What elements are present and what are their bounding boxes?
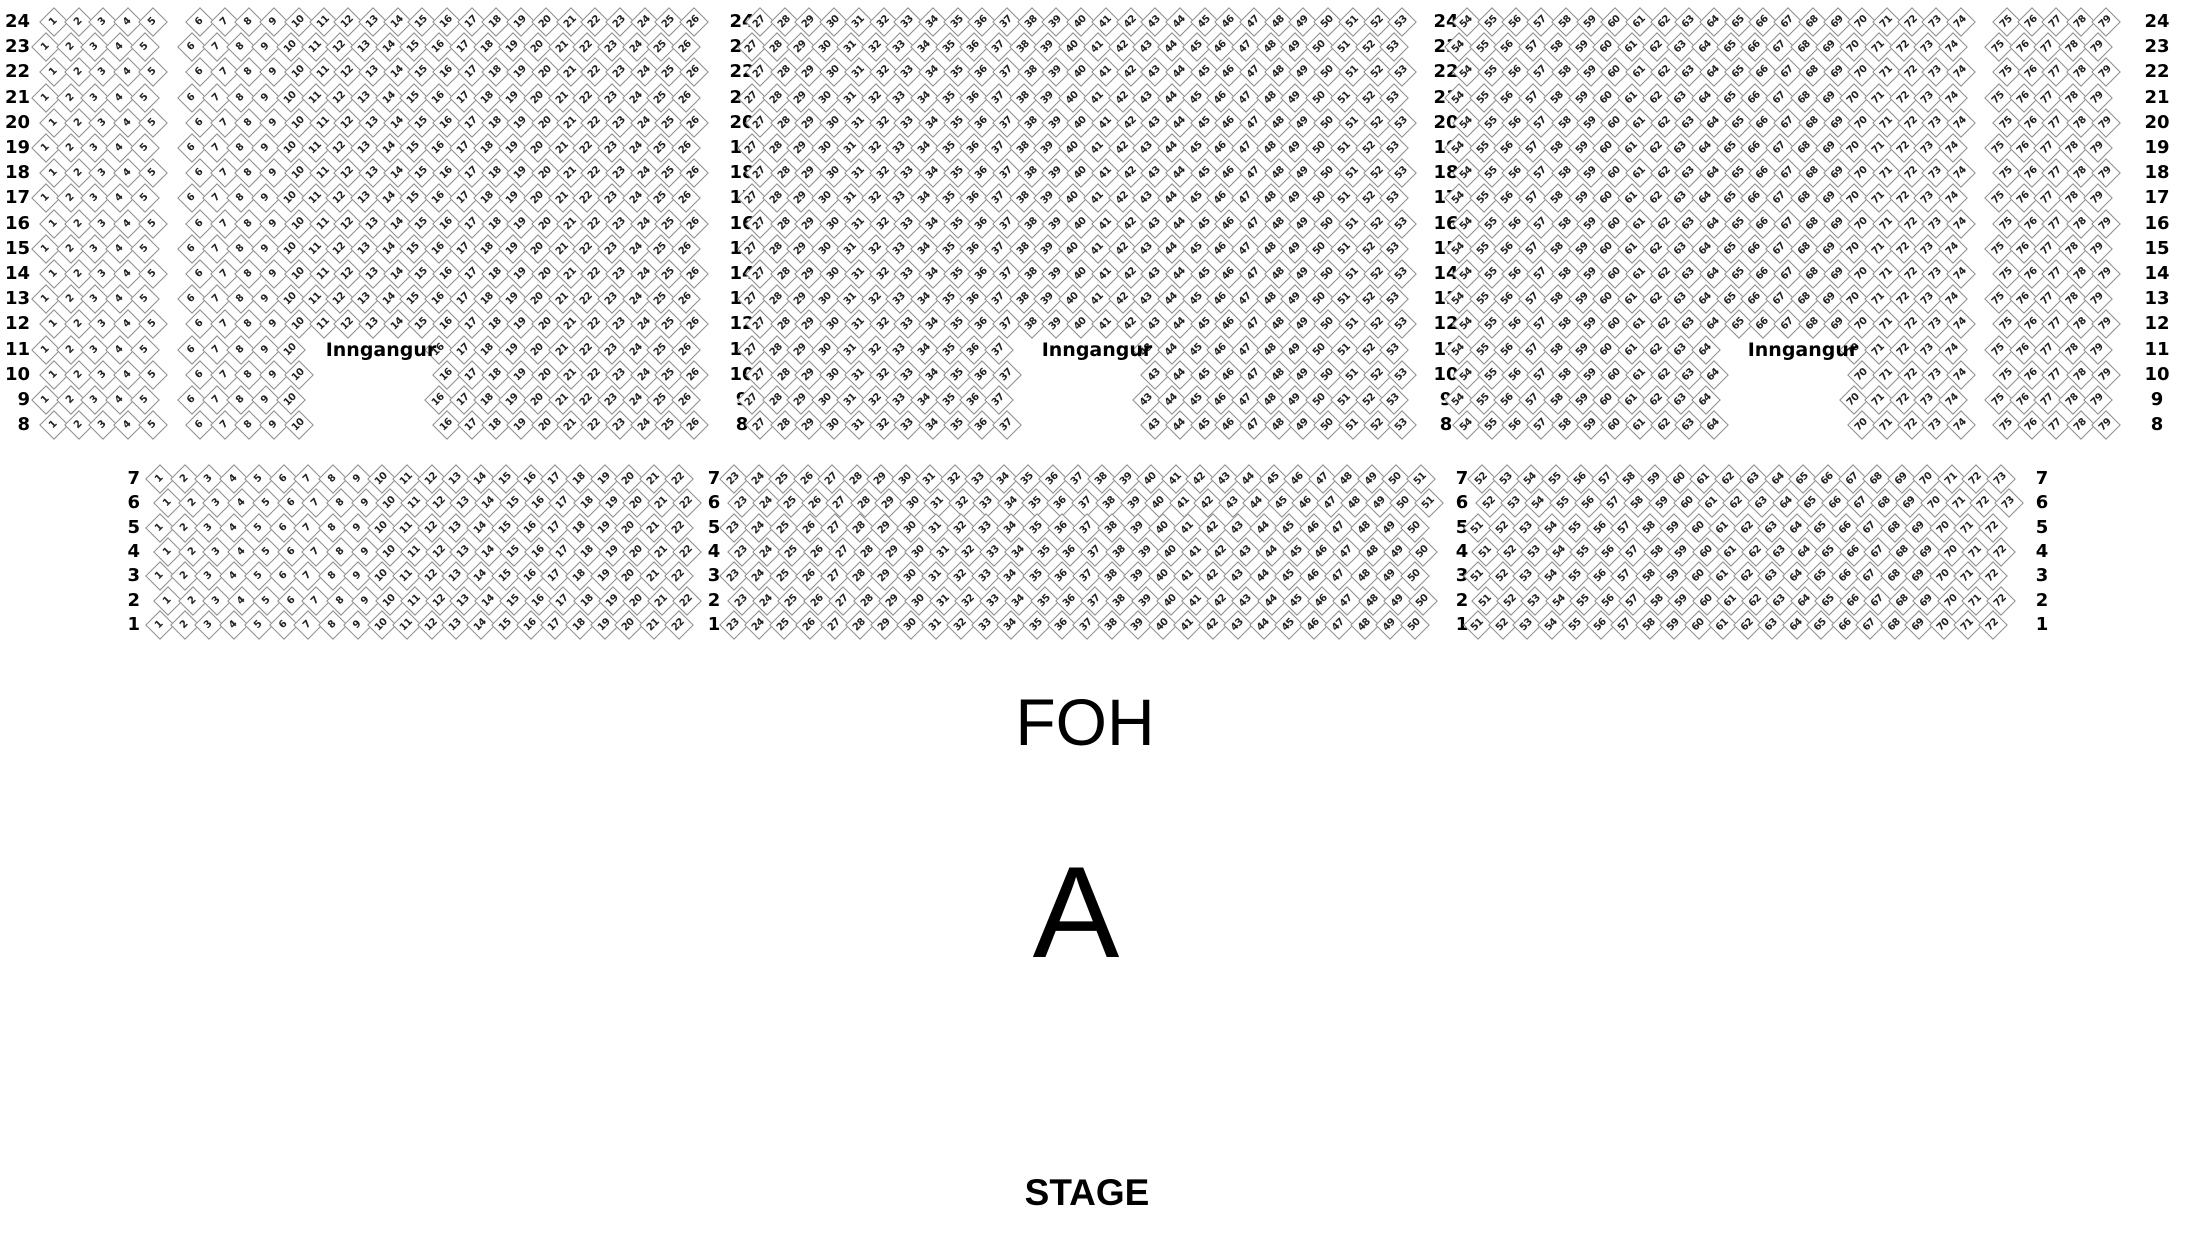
seat-number: 5: [147, 319, 159, 331]
seat[interactable]: 53: [1387, 108, 1417, 138]
seat[interactable]: 74: [1946, 360, 1976, 390]
seat-number: 19: [505, 89, 521, 105]
seat-number: 56: [1508, 266, 1524, 282]
seat-number: 73: [1920, 190, 1936, 206]
seat-number: 21: [646, 568, 662, 584]
seat-number: 55: [1476, 392, 1492, 408]
seat-number: 10: [291, 64, 307, 80]
seat-number: 70: [1854, 64, 1870, 80]
seat[interactable]: 72: [1978, 561, 2008, 591]
seat-number: 37: [991, 140, 1007, 156]
seat[interactable]: 79: [2091, 108, 2121, 138]
seat-number: 15: [498, 471, 514, 487]
seat-number: 25: [653, 241, 669, 257]
seat-number: 10: [283, 39, 299, 55]
seat[interactable]: 26: [671, 133, 701, 163]
seat[interactable]: 79: [2091, 7, 2121, 37]
seat-number: 4: [114, 193, 126, 205]
seat[interactable]: 74: [1938, 234, 1968, 264]
seat-number: 61: [1624, 89, 1640, 105]
seat-number: 21: [562, 64, 578, 80]
seat-number: 27: [752, 417, 768, 433]
seat[interactable]: 79: [2083, 335, 2113, 365]
seat-number: 35: [949, 266, 965, 282]
seat-number: 45: [1188, 89, 1204, 105]
seat-number: 36: [974, 215, 990, 231]
seat-number: 14: [389, 64, 405, 80]
seat[interactable]: 22: [664, 610, 694, 640]
seat[interactable]: 26: [679, 259, 709, 289]
seat-number: 20: [538, 367, 554, 383]
seat-number: 23: [604, 392, 620, 408]
seat[interactable]: 22: [664, 513, 694, 543]
seat-number: 29: [793, 39, 809, 55]
seat-number: 2: [73, 16, 85, 28]
seat[interactable]: 26: [679, 209, 709, 239]
seat[interactable]: 37: [992, 410, 1022, 440]
seat[interactable]: 74: [1946, 259, 1976, 289]
row-label: 19: [2144, 139, 2169, 157]
seat-number: 49: [1382, 568, 1398, 584]
seat-number: 13: [365, 64, 381, 80]
seat[interactable]: 79: [2091, 310, 2121, 340]
seat-number: 62: [1729, 495, 1745, 511]
seat-number: 36: [1054, 519, 1070, 535]
seat[interactable]: 26: [671, 234, 701, 264]
seat-number: 60: [1599, 291, 1615, 307]
seat[interactable]: 53: [1387, 209, 1417, 239]
seat-number: 9: [352, 522, 364, 534]
seat[interactable]: 22: [664, 561, 694, 591]
seat[interactable]: 53: [1387, 360, 1417, 390]
seat-number: 52: [1369, 115, 1385, 131]
seat[interactable]: 64: [1691, 385, 1721, 415]
seat-number: 71: [1968, 544, 1984, 560]
seat-number: 9: [260, 92, 272, 104]
seat[interactable]: 22: [672, 488, 702, 518]
seat-number: 71: [1879, 367, 1895, 383]
seat-number: 21: [562, 165, 578, 181]
seat-number: 63: [1673, 190, 1689, 206]
seat-number: 2: [65, 344, 77, 356]
seat-number: 42: [1192, 471, 1208, 487]
seat-number: 5: [253, 473, 265, 485]
seat-number: 27: [744, 392, 760, 408]
seat-number: 58: [1558, 367, 1574, 383]
seat[interactable]: 74: [1946, 58, 1976, 88]
seat-number: 33: [892, 140, 908, 156]
seat[interactable]: 5: [138, 7, 168, 37]
seat-number: 19: [596, 519, 612, 535]
seat-number: 31: [928, 568, 944, 584]
seat-number: 70: [1919, 471, 1935, 487]
seat-number: 26: [678, 291, 694, 307]
seat-number: 77: [2048, 367, 2064, 383]
seat-number: 32: [953, 519, 969, 535]
seat[interactable]: 74: [1938, 83, 1968, 113]
seat-number: 17: [547, 519, 563, 535]
seat[interactable]: 74: [1946, 410, 1976, 440]
seat-number: 12: [340, 165, 356, 181]
seat[interactable]: 74: [1938, 284, 1968, 314]
seat[interactable]: 37: [992, 360, 1022, 390]
seat-number: 6: [194, 369, 206, 381]
seat-number: 3: [212, 497, 224, 509]
seat[interactable]: 79: [2083, 184, 2113, 214]
seat[interactable]: 5: [130, 385, 160, 415]
seat-number: 4: [122, 218, 134, 230]
seat-number: 32: [953, 617, 969, 633]
seat-number: 6: [186, 344, 198, 356]
seat-number: 34: [917, 190, 933, 206]
seat[interactable]: 10: [284, 410, 314, 440]
seat-number: 6: [194, 16, 206, 28]
seat-number: 1: [48, 16, 60, 28]
seat[interactable]: 79: [2083, 284, 2113, 314]
seat-number: 45: [1188, 140, 1204, 156]
seat-number: 4: [114, 142, 126, 154]
seat[interactable]: 79: [2091, 209, 2121, 239]
seat[interactable]: 5: [138, 209, 168, 239]
seat[interactable]: 5: [138, 259, 168, 289]
seat-number: 31: [843, 190, 859, 206]
seat-number: 18: [488, 165, 504, 181]
seat[interactable]: 79: [2091, 360, 2121, 390]
seat-number: 14: [381, 190, 397, 206]
seat-number: 69: [1821, 291, 1837, 307]
seat-number: 34: [917, 140, 933, 156]
seat[interactable]: 10: [284, 360, 314, 390]
seat[interactable]: 5: [138, 360, 168, 390]
seat[interactable]: 53: [1379, 335, 1409, 365]
seat-number: 47: [1246, 64, 1262, 80]
seat-number: 76: [2016, 291, 2032, 307]
seat-number: 28: [777, 266, 793, 282]
seat-number: 7: [219, 218, 231, 230]
seat-number: 45: [1196, 165, 1212, 181]
seat[interactable]: 26: [671, 32, 701, 62]
seat-number: 54: [1551, 544, 1567, 560]
seat-number: 54: [1451, 39, 1467, 55]
seat[interactable]: 79: [2083, 133, 2113, 163]
seat[interactable]: 74: [1938, 385, 1968, 415]
seat-number: 35: [1020, 471, 1036, 487]
seat-number: 46: [1213, 89, 1229, 105]
seat-number: 55: [1484, 316, 1500, 332]
seat-number: 29: [801, 316, 817, 332]
seat-number: 23: [612, 316, 628, 332]
seat[interactable]: 53: [1387, 410, 1417, 440]
seat[interactable]: 5: [138, 310, 168, 340]
seat-number: 57: [1525, 392, 1541, 408]
seat-number: 77: [2040, 140, 2056, 156]
seat[interactable]: 5: [130, 83, 160, 113]
seat[interactable]: 5: [130, 284, 160, 314]
seat[interactable]: 64: [1699, 410, 1729, 440]
seat[interactable]: 53: [1379, 83, 1409, 113]
seat-number: 17: [464, 64, 480, 80]
seat[interactable]: 37: [984, 335, 1014, 365]
seat-number: 5: [147, 117, 159, 129]
seat-number: 14: [481, 544, 497, 560]
seat-number: 70: [1936, 519, 1952, 535]
seat-number: 49: [1382, 617, 1398, 633]
seat[interactable]: 74: [1938, 335, 1968, 365]
seat-number: 10: [374, 519, 390, 535]
row-label: 6: [2036, 494, 2049, 512]
seat-number: 2: [73, 67, 85, 79]
seat[interactable]: 53: [1379, 133, 1409, 163]
seat-number: 63: [1681, 316, 1697, 332]
seat-number: 12: [340, 266, 356, 282]
seat-number: 22: [587, 215, 603, 231]
seat-number: 70: [1854, 165, 1870, 181]
seat[interactable]: 79: [2091, 158, 2121, 188]
seat-number: 23: [726, 617, 742, 633]
seat[interactable]: 10: [276, 385, 306, 415]
seat-number: 20: [629, 592, 645, 608]
seat-number: 18: [572, 471, 588, 487]
seat[interactable]: 5: [138, 108, 168, 138]
seat[interactable]: 26: [679, 310, 709, 340]
seat[interactable]: 5: [138, 410, 168, 440]
seat-number: 2: [73, 369, 85, 381]
seat-number: 26: [678, 190, 694, 206]
seat-number: 12: [340, 14, 356, 30]
seat[interactable]: 74: [1946, 209, 1976, 239]
seat-number: 9: [260, 193, 272, 205]
seat-number: 8: [236, 142, 248, 154]
seat[interactable]: 5: [130, 184, 160, 214]
seat[interactable]: 26: [671, 385, 701, 415]
seat-number: 48: [1356, 519, 1372, 535]
seat-number: 5: [147, 218, 159, 230]
seat[interactable]: 79: [2083, 385, 2113, 415]
seat-number: 19: [513, 215, 529, 231]
seat-number: 6: [194, 268, 206, 280]
seat-number: 21: [654, 495, 670, 511]
seat-number: 29: [793, 140, 809, 156]
seat-number: 64: [1778, 495, 1794, 511]
seat-number: 18: [480, 39, 496, 55]
seat[interactable]: 26: [679, 360, 709, 390]
seat-number: 44: [1172, 14, 1188, 30]
seat-number: 14: [381, 241, 397, 257]
seat-number: 25: [775, 471, 791, 487]
seat[interactable]: 79: [2091, 259, 2121, 289]
seat-number: 33: [978, 519, 994, 535]
row-label: 6: [1456, 494, 1469, 512]
seat-number: 30: [818, 190, 834, 206]
seat-number: 61: [1715, 568, 1731, 584]
seat-number: 72: [1903, 266, 1919, 282]
seat-number: 41: [1090, 39, 1106, 55]
entrance-label: Inngangur: [1042, 339, 1153, 361]
seat[interactable]: 53: [1379, 32, 1409, 62]
seat[interactable]: 74: [1946, 310, 1976, 340]
seat-number: 63: [1764, 617, 1780, 633]
seat-number: 52: [1494, 568, 1510, 584]
seat-number: 16: [530, 544, 546, 560]
seat-number: 3: [90, 344, 102, 356]
seat-number: 32: [867, 39, 883, 55]
seat[interactable]: 26: [671, 83, 701, 113]
seat-number: 74: [1953, 266, 1969, 282]
seat-number: 65: [1813, 617, 1829, 633]
seat-number: 2: [65, 193, 77, 205]
seat-number: 16: [431, 39, 447, 55]
seat[interactable]: 50: [1400, 561, 1430, 591]
seat-number: 50: [1396, 495, 1412, 511]
seat[interactable]: 26: [671, 184, 701, 214]
seat[interactable]: 64: [1691, 335, 1721, 365]
seat-number: 48: [1271, 316, 1287, 332]
seat[interactable]: 10: [276, 335, 306, 365]
seat[interactable]: 51: [1406, 464, 1436, 494]
seat-number: 6: [194, 419, 206, 431]
seat[interactable]: 5: [130, 335, 160, 365]
seat-number: 44: [1256, 568, 1272, 584]
seat-number: 20: [530, 341, 546, 357]
seat-number: 55: [1484, 165, 1500, 181]
seat-number: 52: [1369, 367, 1385, 383]
seat-number: 31: [843, 291, 859, 307]
seat[interactable]: 53: [1387, 310, 1417, 340]
seat-number: 60: [1699, 592, 1715, 608]
seat-number: 26: [686, 266, 702, 282]
seat[interactable]: 5: [138, 58, 168, 88]
seat[interactable]: 64: [1699, 360, 1729, 390]
seat-number: 31: [936, 544, 952, 560]
seat[interactable]: 79: [2091, 410, 2121, 440]
seat-number: 70: [1936, 617, 1952, 633]
seat-number: 52: [1494, 519, 1510, 535]
seat-number: 54: [1523, 471, 1539, 487]
seat-number: 30: [818, 89, 834, 105]
seat[interactable]: 74: [1938, 32, 1968, 62]
seat-number: 75: [1999, 14, 2015, 30]
seat[interactable]: 79: [2083, 234, 2113, 264]
seat[interactable]: 74: [1946, 7, 1976, 37]
seat-number: 43: [1139, 241, 1155, 257]
seat-number: 29: [873, 471, 889, 487]
seat-number: 4: [236, 546, 248, 558]
seat-number: 24: [628, 392, 644, 408]
seat-number: 8: [244, 419, 256, 431]
seat-number: 9: [360, 595, 372, 607]
seat[interactable]: 79: [2091, 58, 2121, 88]
seat-number: 56: [1500, 291, 1516, 307]
seat-number: 62: [1740, 617, 1756, 633]
seat[interactable]: 74: [1946, 108, 1976, 138]
seat-number: 20: [621, 568, 637, 584]
seat[interactable]: 5: [130, 234, 160, 264]
seat-number: 63: [1681, 14, 1697, 30]
seat-number: 66: [1755, 165, 1771, 181]
seat[interactable]: 51: [1414, 488, 1444, 518]
seat-number: 54: [1459, 367, 1475, 383]
seat-number: 13: [357, 140, 373, 156]
seat-number: 39: [1129, 568, 1145, 584]
seat-number: 22: [679, 544, 695, 560]
seat-number: 25: [776, 568, 792, 584]
seat-number: 4: [228, 522, 240, 534]
seat-number: 68: [1805, 64, 1821, 80]
seat-number: 43: [1139, 190, 1155, 206]
seat-number: 35: [1029, 568, 1045, 584]
seat[interactable]: 26: [679, 58, 709, 88]
seat[interactable]: 26: [671, 284, 701, 314]
seat[interactable]: 73: [1994, 488, 2024, 518]
seat[interactable]: 53: [1379, 385, 1409, 415]
seat[interactable]: 53: [1379, 234, 1409, 264]
seat[interactable]: 37: [984, 385, 1014, 415]
seat[interactable]: 26: [679, 7, 709, 37]
seat-number: 18: [488, 215, 504, 231]
seat-number: 42: [1114, 241, 1130, 257]
seat-number: 7: [211, 394, 223, 406]
seat-number: 52: [1502, 544, 1518, 560]
seat-number: 25: [661, 115, 677, 131]
seat-number: 19: [505, 241, 521, 257]
seat[interactable]: 53: [1387, 58, 1417, 88]
seat-number: 3: [90, 92, 102, 104]
seat-number: 67: [1862, 617, 1878, 633]
seat-number: 68: [1797, 89, 1813, 105]
seat-number: 61: [1624, 291, 1640, 307]
seat[interactable]: 53: [1379, 284, 1409, 314]
seat-number: 71: [1960, 519, 1976, 535]
seat-number: 46: [1314, 592, 1330, 608]
seat-number: 50: [1312, 241, 1328, 257]
seat-number: 79: [2090, 291, 2106, 307]
seat[interactable]: 5: [130, 32, 160, 62]
seat-number: 31: [851, 215, 867, 231]
seat-number: 74: [1953, 316, 1969, 332]
seat-number: 19: [505, 39, 521, 55]
seat[interactable]: 72: [1978, 610, 2008, 640]
seat-number: 18: [488, 115, 504, 131]
seat-number: 17: [456, 341, 472, 357]
seat-number: 72: [1985, 519, 2001, 535]
seat[interactable]: 73: [1986, 464, 2016, 494]
seat-number: 10: [291, 115, 307, 131]
seat[interactable]: 5: [138, 158, 168, 188]
seat-number: 6: [186, 41, 198, 53]
seat-number: 50: [1415, 592, 1431, 608]
seat[interactable]: 5: [130, 133, 160, 163]
seat-number: 30: [826, 165, 842, 181]
seat[interactable]: 74: [1938, 133, 1968, 163]
seat[interactable]: 50: [1400, 610, 1430, 640]
seat-number: 42: [1122, 266, 1138, 282]
seat-number: 47: [1246, 266, 1262, 282]
seat-number: 53: [1394, 215, 1410, 231]
seat[interactable]: 79: [2083, 32, 2113, 62]
seat-number: 4: [122, 16, 134, 28]
seat-number: 18: [580, 544, 596, 560]
seat[interactable]: 74: [1938, 184, 1968, 214]
seat[interactable]: 79: [2083, 83, 2113, 113]
seat[interactable]: 26: [679, 410, 709, 440]
seat[interactable]: 26: [679, 108, 709, 138]
seat-number: 60: [1607, 64, 1623, 80]
seat-number: 70: [1846, 190, 1862, 206]
seat[interactable]: 53: [1379, 184, 1409, 214]
seat-number: 26: [678, 39, 694, 55]
seat[interactable]: 26: [671, 335, 701, 365]
seat-number: 9: [268, 419, 280, 431]
